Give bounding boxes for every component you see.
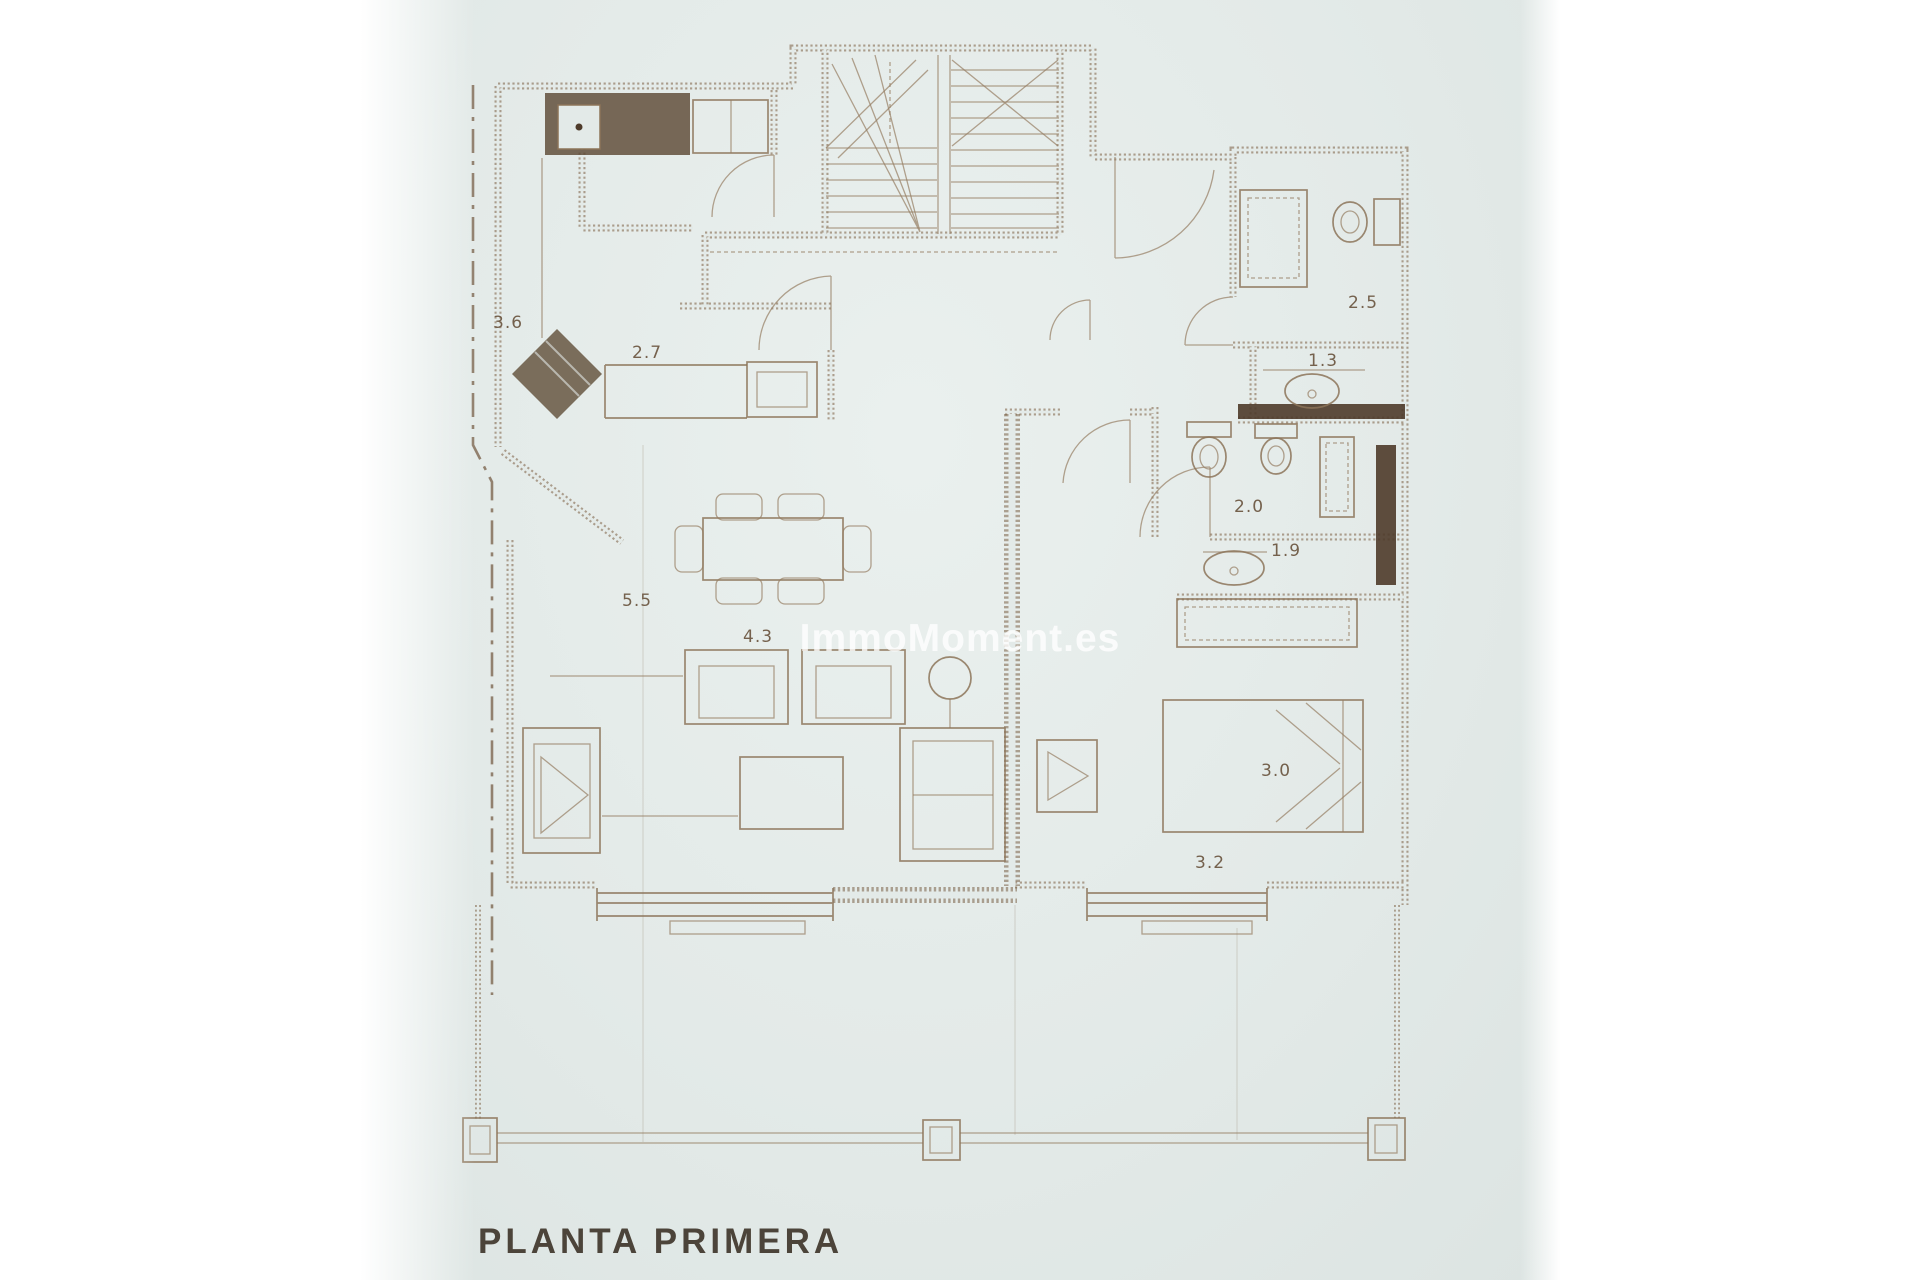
washbasin [1204, 551, 1264, 585]
kitchen-faucet-icon [576, 124, 583, 131]
dining-chair [778, 578, 824, 604]
scan-creases [643, 445, 1237, 1142]
window-step [670, 921, 805, 934]
bathroom-1-9 [1203, 551, 1267, 585]
toilet-tank [1374, 199, 1400, 245]
dining-table [703, 518, 843, 580]
lot-boundary-line [473, 85, 492, 995]
walls [478, 48, 1405, 1120]
dining-chair [675, 526, 703, 572]
dim-label-kitchen-2: 2.7 [632, 343, 662, 363]
stair-direction-lines [832, 55, 920, 232]
window-step [1142, 921, 1252, 934]
dim-label-kitchen: 3.6 [493, 313, 523, 333]
kitchen-lower-door [759, 276, 831, 350]
shower [1240, 190, 1307, 287]
bedroom [1037, 599, 1363, 832]
washbasin [1285, 374, 1339, 408]
bathroom-2-5 [1240, 190, 1400, 287]
living-dining-room [523, 494, 1005, 861]
toilet [1333, 202, 1367, 242]
armchair [685, 650, 788, 724]
dim-label-bedroom: 3.0 [1261, 761, 1291, 781]
hatched-partition-wall [833, 414, 1017, 895]
bathroom-2-0-door [1140, 467, 1210, 537]
dim-label-room-13: 1.3 [1308, 351, 1338, 371]
dim-label-bath-20: 2.0 [1234, 497, 1264, 517]
entry-door [1115, 157, 1214, 258]
floorplan-drawing: 3.6 2.7 2.5 1.3 2.0 1.9 5.5 4.3 3.0 3.2 [360, 0, 1560, 1280]
stair-break-line [826, 60, 928, 158]
terrace [463, 1118, 1405, 1162]
bathroom-2-0 [1187, 422, 1354, 517]
shower [1320, 437, 1354, 517]
dark-marked-walls [1238, 404, 1405, 585]
dining-chair [778, 494, 824, 520]
dim-label-living-2: 4.3 [743, 627, 773, 647]
scan-paper: 3.6 2.7 2.5 1.3 2.0 1.9 5.5 4.3 3.0 3.2 … [360, 0, 1560, 1280]
bedroom-window [1087, 888, 1267, 921]
dining-chair [843, 526, 871, 572]
armchair [802, 650, 905, 724]
stair-cross-mark [952, 60, 1058, 146]
coffee-table [740, 757, 843, 829]
bidet [1261, 438, 1291, 474]
dining-chair [716, 578, 762, 604]
hall-door [1050, 300, 1090, 340]
terrace-post [923, 1120, 960, 1160]
terrace-post [1368, 1118, 1405, 1160]
bedroom-door [1063, 420, 1130, 483]
scan-edge-fade-right [1520, 0, 1560, 1280]
dim-label-bedroom-2: 3.2 [1195, 853, 1225, 873]
kitchen [512, 93, 817, 419]
floor-lamp-side-table [929, 657, 971, 699]
plan-title: PLANTA PRIMERA [478, 1222, 843, 1262]
living-room-window [597, 888, 833, 921]
scanned-floorplan-page: 3.6 2.7 2.5 1.3 2.0 1.9 5.5 4.3 3.0 3.2 … [0, 0, 1920, 1280]
room-1-3 [1263, 370, 1365, 408]
toilet [1192, 437, 1226, 477]
scan-edge-fade-left [360, 0, 475, 1280]
bathroom-2-5-door [1185, 297, 1233, 345]
dim-label-bath-19: 1.9 [1271, 541, 1301, 561]
kitchen-upper-door [712, 155, 774, 217]
toilet-tank [1187, 422, 1231, 437]
wardrobe [1177, 599, 1357, 647]
bidet-tank [1255, 424, 1297, 438]
dim-label-living: 5.5 [622, 591, 652, 611]
dining-chair [716, 494, 762, 520]
dark-wall-vertical [1376, 445, 1396, 585]
dim-label-bath-25: 2.5 [1348, 293, 1378, 313]
